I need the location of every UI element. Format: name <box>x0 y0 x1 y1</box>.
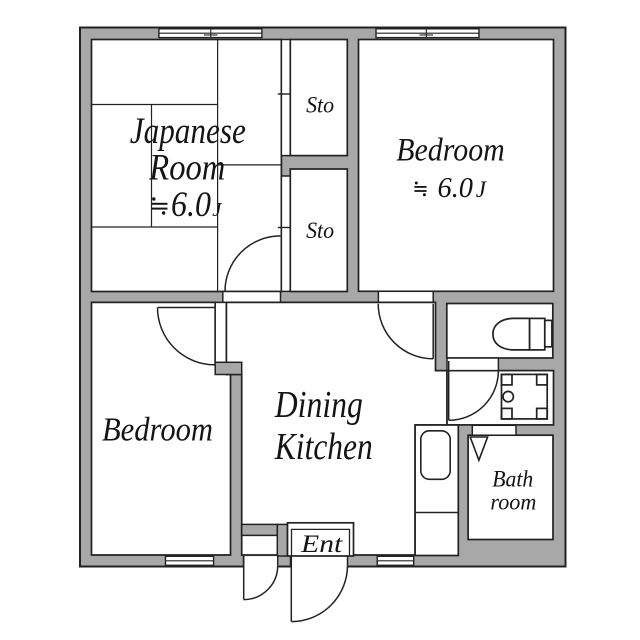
svg-text:Ent: Ent <box>300 531 343 558</box>
svg-text:Kitchen: Kitchen <box>274 426 373 468</box>
svg-text:6.0: 6.0 <box>438 173 474 204</box>
svg-text:Bedroom: Bedroom <box>396 133 505 169</box>
svg-text:Bath: Bath <box>492 466 533 491</box>
svg-text:J: J <box>212 199 222 221</box>
svg-text:Sto: Sto <box>306 93 334 118</box>
svg-text:room: room <box>490 489 536 514</box>
svg-text:Sto: Sto <box>306 218 334 243</box>
svg-text:J: J <box>476 177 488 202</box>
svg-text:Japanese: Japanese <box>130 111 246 152</box>
svg-text:Room: Room <box>148 148 225 189</box>
svg-text:Dining: Dining <box>274 384 363 426</box>
svg-text:Bedroom: Bedroom <box>102 412 213 449</box>
svg-text:6.0: 6.0 <box>171 184 211 224</box>
